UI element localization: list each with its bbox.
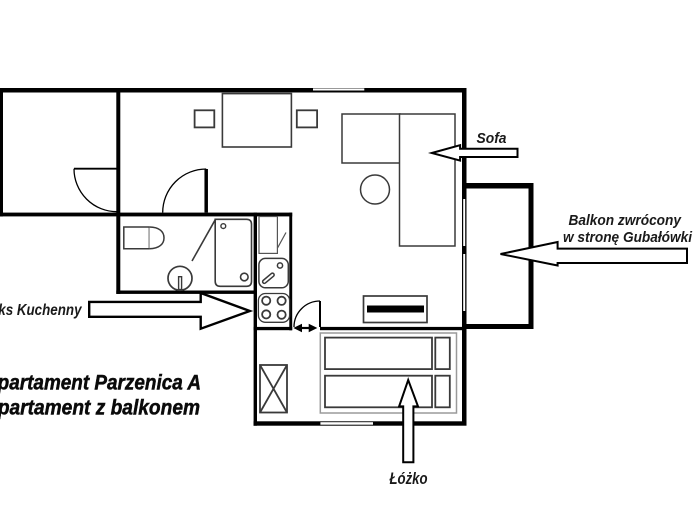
- svg-text:w stronę Gubałówki: w stronę Gubałówki: [563, 229, 693, 246]
- svg-text:Apartament z balkonem: Apartament z balkonem: [0, 396, 200, 420]
- svg-text:Łóżko: Łóżko: [389, 469, 428, 488]
- svg-text:Sofa: Sofa: [477, 131, 507, 147]
- svg-text:Aneks Kuchenny: Aneks Kuchenny: [0, 302, 82, 319]
- svg-text:Balkon zwrócony: Balkon zwrócony: [569, 212, 682, 229]
- svg-text:Apartament Parzenica A: Apartament Parzenica A: [0, 371, 201, 395]
